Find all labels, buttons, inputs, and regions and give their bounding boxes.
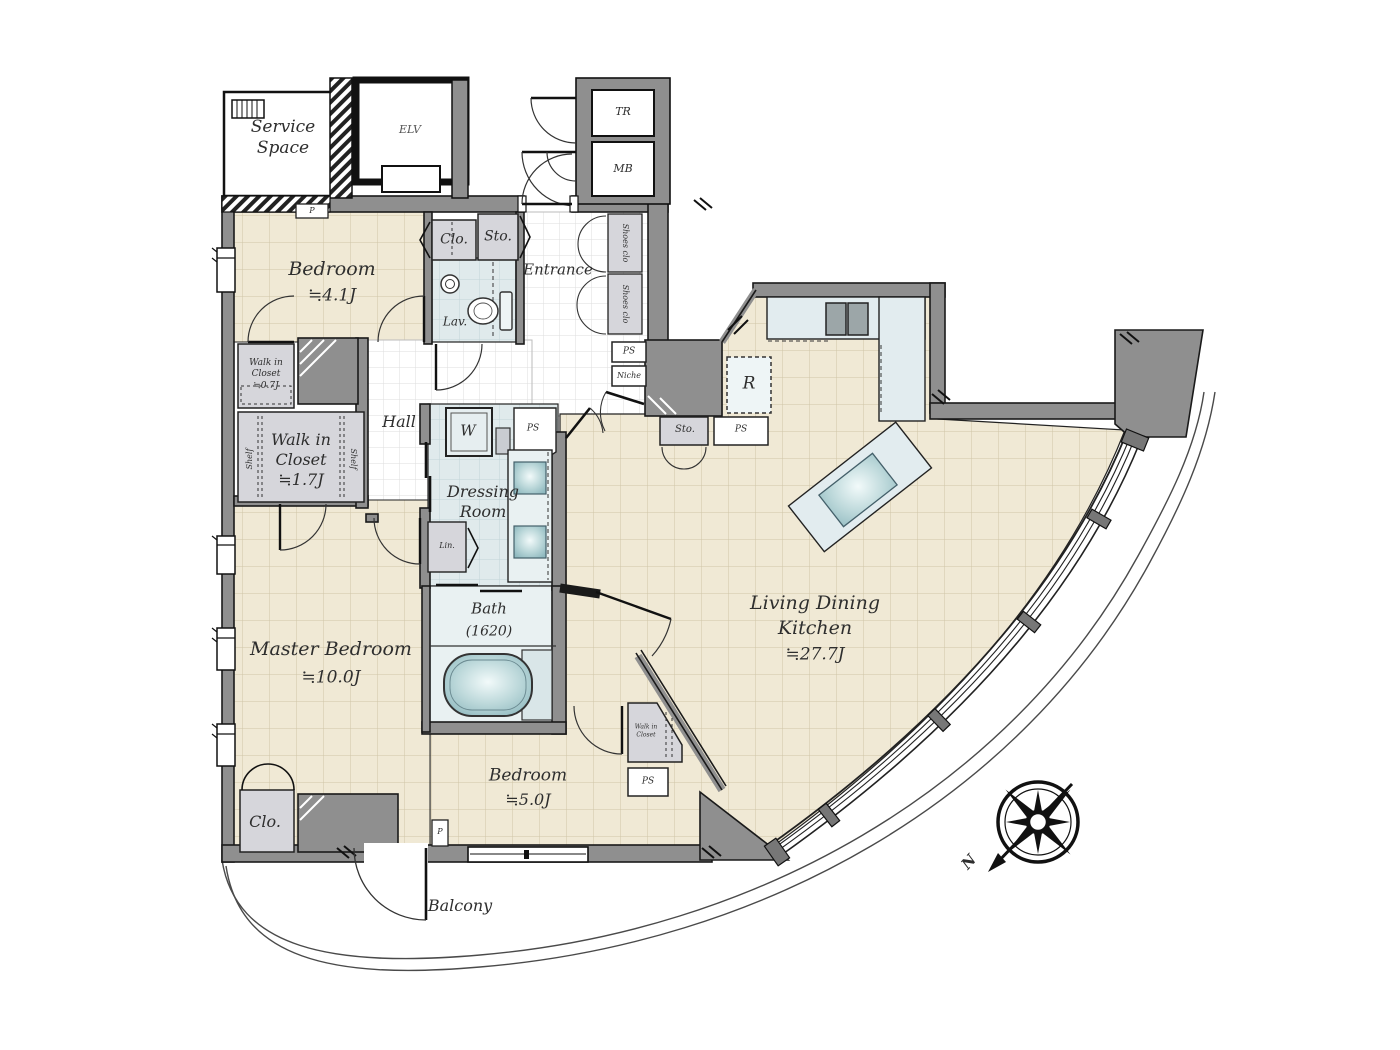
- elevator-shaft: [356, 80, 468, 198]
- window-icon: [217, 248, 235, 292]
- toilet-icon: [468, 298, 498, 324]
- p-box: [432, 820, 448, 846]
- sink-icon: [514, 462, 546, 494]
- floor-plan-canvas: ServiceSpace ELV TR MB P Bedroom ≒4.1J C…: [0, 0, 1400, 1050]
- niche-box: [612, 366, 646, 386]
- bathtub-icon: [444, 654, 532, 716]
- entry-door: [518, 154, 578, 212]
- refrigerator-box: [727, 357, 771, 413]
- compass-icon: [988, 782, 1078, 872]
- linen-closet: [428, 522, 466, 572]
- sto2-box: [660, 417, 708, 445]
- trunk-meter-boxes: [522, 78, 670, 206]
- service-space: [222, 78, 352, 212]
- window-icon: [217, 536, 235, 574]
- washbasin-icon: [441, 275, 459, 293]
- ps-box: [612, 342, 646, 362]
- stove-icon: [848, 303, 868, 335]
- washer-box-icon: [446, 408, 492, 456]
- ps-bedroom-box: [628, 768, 668, 796]
- floorplan-drawing: [0, 0, 1400, 1050]
- window-icon: [217, 724, 235, 766]
- sink-icon: [514, 526, 546, 558]
- window-icon: [217, 628, 235, 670]
- stove-icon: [826, 303, 846, 335]
- ps-kitchen-box: [714, 417, 768, 445]
- toilet-tank-icon: [500, 292, 512, 330]
- walkin-closet-small: [238, 344, 294, 408]
